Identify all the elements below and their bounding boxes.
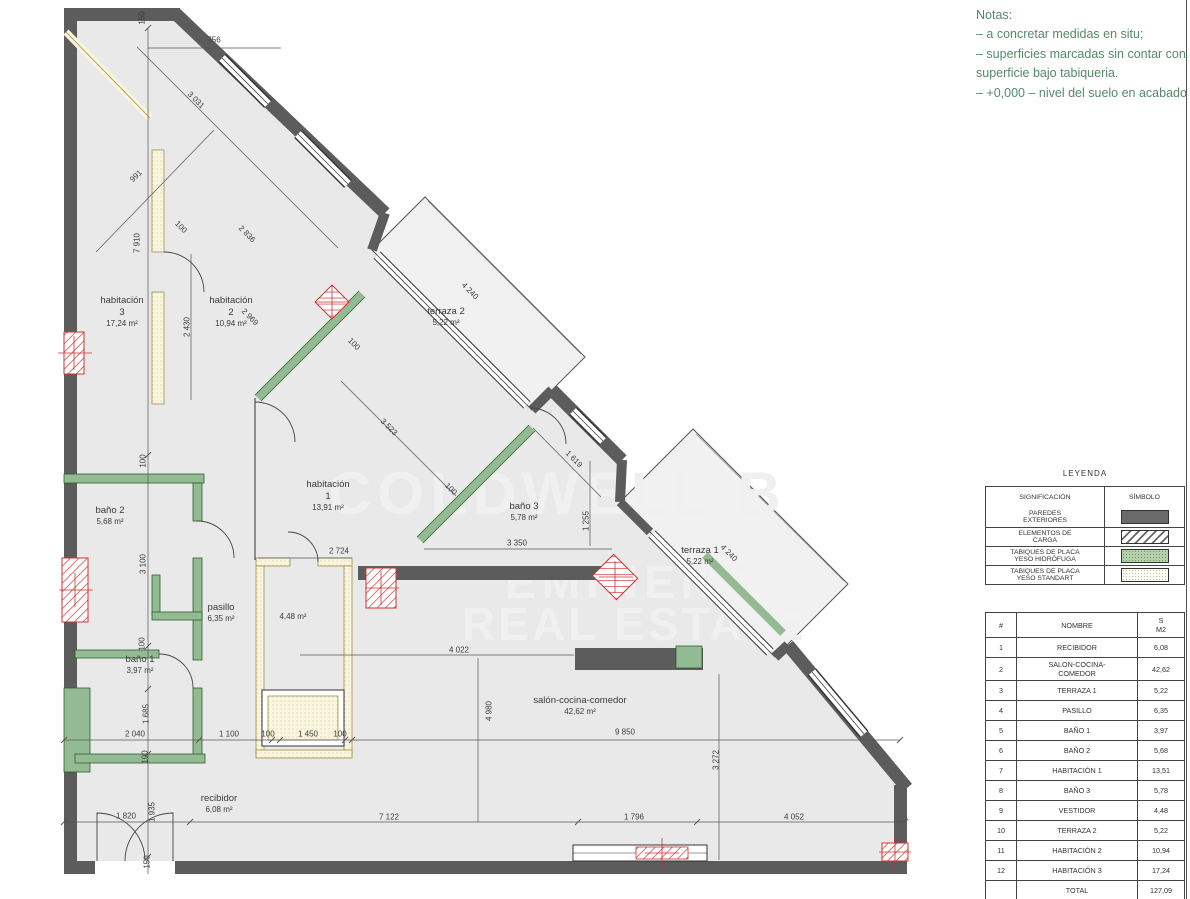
dimension-label: 1 685 xyxy=(142,704,151,724)
dimension-label: 4 052 xyxy=(784,813,804,822)
dimension-label: 3 523 xyxy=(379,417,400,438)
dimension-label: 3 350 xyxy=(507,539,527,548)
legend-row: TABIQUES DE PLACAYESO STANDART xyxy=(986,565,1184,584)
table-row: 8BAÑO 35,78 xyxy=(986,780,1184,800)
room-label: 4,48 m² xyxy=(279,612,306,622)
dimension-label: 150 xyxy=(138,11,147,24)
room-label-line: 4,48 m² xyxy=(279,612,306,622)
room-label-line: 6,08 m² xyxy=(201,805,237,815)
row-number: 11 xyxy=(986,841,1017,860)
rooms-table-header: # NOMBRE SM2 xyxy=(986,613,1184,637)
row-number: 12 xyxy=(986,861,1017,880)
room-label-line: 13,91 m² xyxy=(306,503,349,513)
row-name: HABITACIÓN 3 xyxy=(1017,861,1138,880)
note-line: – superficies marcadas sin contar con xyxy=(976,45,1190,64)
text-line: S xyxy=(1159,616,1164,625)
text-line: BAÑO 3 xyxy=(1064,786,1090,795)
row-name: TERRAZA 2 xyxy=(1017,821,1138,840)
row-area: 5,22 xyxy=(1138,681,1184,700)
text-line: CARGA xyxy=(987,537,1103,544)
text-line: TABIQUES DE PLACA xyxy=(987,549,1103,556)
room-label-line: habitación xyxy=(209,295,252,307)
room-label-line: 5,78 m² xyxy=(509,513,538,523)
room-label: habitación317,24 m² xyxy=(100,295,143,329)
dimension-label: 4 240 xyxy=(719,543,740,564)
text-line: HABITACIÓN 2 xyxy=(1052,846,1101,855)
room-label: pasillo6,35 m² xyxy=(207,602,234,624)
room-label-line: 5,22 m² xyxy=(681,557,719,567)
col-header-num: # xyxy=(986,613,1017,637)
row-number: 4 xyxy=(986,701,1017,720)
row-area: 6,35 xyxy=(1138,701,1184,720)
room-label-line: habitación xyxy=(100,295,143,307)
text-line: SALON-COCINA- xyxy=(1048,660,1105,669)
sheet-frame-line xyxy=(1186,0,1187,899)
dimension-label: 3 031 xyxy=(186,90,207,111)
rooms-table: # NOMBRE SM2 1RECIBIDOR6,082SALON-COCINA… xyxy=(985,612,1185,899)
room-label-line: 17,24 m² xyxy=(100,319,143,329)
row-number: 5 xyxy=(986,721,1017,740)
table-row: 3TERRAZA 15,22 xyxy=(986,680,1184,700)
dimension-label: 991 xyxy=(128,168,144,184)
room-label: baño 25,68 m² xyxy=(95,505,124,527)
dimension-label: 100 xyxy=(261,730,274,739)
legend-row-label: ELEMENTOS DECARGA xyxy=(986,528,1105,546)
room-label: recibidor6,08 m² xyxy=(201,793,237,815)
dimension-label: 2 430 xyxy=(183,317,192,337)
room-label-line: pasillo xyxy=(207,602,234,614)
text-line: M2 xyxy=(1156,625,1166,634)
room-label-line: baño 1 xyxy=(125,654,154,666)
room-label-line: salón-cocina-comedor xyxy=(533,695,626,707)
table-row: 10TERRAZA 25,22 xyxy=(986,820,1184,840)
room-label: salón-cocina-comedor42,62 m² xyxy=(533,695,626,717)
total-value: 127,09 xyxy=(1138,881,1184,899)
room-label: terraza 25,22 m² xyxy=(427,306,465,328)
text-line: ELEMENTOS DE xyxy=(987,530,1103,537)
dimension-label: 2 040 xyxy=(125,730,145,739)
row-area: 10,94 xyxy=(1138,841,1184,860)
row-name: HABITACIÓN 1 xyxy=(1017,761,1138,780)
dimension-label: 1 935 xyxy=(148,802,157,822)
table-row: 6BAÑO 25,68 xyxy=(986,740,1184,760)
legend-row: PAREDESEXTERIORES xyxy=(986,507,1184,527)
legend-row: ELEMENTOS DECARGA xyxy=(986,527,1184,546)
row-number: 3 xyxy=(986,681,1017,700)
room-label-line: terraza 1 xyxy=(681,545,719,557)
room-label: baño 35,78 m² xyxy=(509,501,538,523)
row-name: PASILLO xyxy=(1017,701,1138,720)
dimension-label: 7 122 xyxy=(379,813,399,822)
room-label-line: 1 xyxy=(306,491,349,503)
dimension-label: 3 100 xyxy=(139,554,148,574)
text-line: VESTIDOR xyxy=(1059,806,1096,815)
dimension-label: 100 xyxy=(346,336,362,352)
legend-title: LEYENDA xyxy=(985,469,1185,478)
text-line: EXTERIORES xyxy=(987,517,1103,524)
table-row: 11HABITACIÓN 210,94 xyxy=(986,840,1184,860)
row-number: 10 xyxy=(986,821,1017,840)
room-label-line: habitación xyxy=(306,479,349,491)
legend-header-row: SIGNIFICACIÓN SÍMBOLO xyxy=(986,487,1184,507)
legend-table: SIGNIFICACIÓN SÍMBOLO PAREDESEXTERIORESE… xyxy=(985,486,1185,585)
table-row: 1RECIBIDOR6,08 xyxy=(986,637,1184,657)
row-number: 8 xyxy=(986,781,1017,800)
dimension-label: 150 xyxy=(143,855,152,868)
room-label: habitación113,91 m² xyxy=(306,479,349,513)
room-label-line: baño 3 xyxy=(509,501,538,513)
legend-row-symbol xyxy=(1105,566,1184,584)
rooms-table-total-row: TOTAL 127,09 xyxy=(986,880,1184,899)
dimension-label: 7 910 xyxy=(133,233,142,253)
dimension-label: 1 796 xyxy=(624,813,644,822)
row-name: VESTIDOR xyxy=(1017,801,1138,820)
legend-row: TABIQUES DE PLACAYESO HIDRÓFUGA xyxy=(986,546,1184,565)
room-label-line: baño 2 xyxy=(95,505,124,517)
text-line: BAÑO 2 xyxy=(1064,746,1090,755)
dimension-label: 1 619 xyxy=(564,449,585,470)
dimension-label: 100 xyxy=(333,730,346,739)
dimension-label: 100 xyxy=(141,750,150,763)
row-number: 7 xyxy=(986,761,1017,780)
total-label: TOTAL xyxy=(1017,881,1138,899)
dimension-label: 1 100 xyxy=(219,730,239,739)
dimension-label: 1 820 xyxy=(116,812,136,821)
room-label-line: recibidor xyxy=(201,793,237,805)
table-row: 5BAÑO 13,97 xyxy=(986,720,1184,740)
table-row: 2SALON-COCINA-COMEDOR42,62 xyxy=(986,657,1184,680)
green-dotted-swatch xyxy=(1121,549,1169,563)
note-line: – +0,000 – nivel del suelo en acabado xyxy=(976,84,1190,103)
dimension-label: 100 xyxy=(443,481,459,497)
row-name: BAÑO 1 xyxy=(1017,721,1138,740)
dimension-label: 1 450 xyxy=(298,730,318,739)
text-line: HABITACIÓN 1 xyxy=(1052,766,1101,775)
text-line: YESO HIDRÓFUGA xyxy=(987,556,1103,563)
dimension-label: 1 255 xyxy=(582,511,591,531)
row-area: 42,62 xyxy=(1138,658,1184,680)
room-label-line: 3,97 m² xyxy=(125,666,154,676)
row-area: 5,68 xyxy=(1138,741,1184,760)
text-line: TERRAZA 2 xyxy=(1057,826,1096,835)
row-number: 1 xyxy=(986,638,1017,657)
legend-row-symbol xyxy=(1105,528,1184,546)
room-label-line: 5,68 m² xyxy=(95,517,124,527)
plan-labels-layer: habitación317,24 m²habitación210,94 m²te… xyxy=(0,0,970,899)
note-line: superficie bajo tabiqueria. xyxy=(976,64,1190,83)
legend-row-symbol xyxy=(1105,547,1184,565)
row-name: BAÑO 3 xyxy=(1017,781,1138,800)
col-header-area: SM2 xyxy=(1138,613,1184,637)
room-label-line: 6,35 m² xyxy=(207,614,234,624)
text-line: HABITACIÓN 3 xyxy=(1052,866,1101,875)
room-label-line: 3 xyxy=(100,307,143,319)
dimension-label: 100 xyxy=(173,219,189,235)
row-area: 3,97 xyxy=(1138,721,1184,740)
row-name: BAÑO 2 xyxy=(1017,741,1138,760)
room-label: baño 13,97 m² xyxy=(125,654,154,676)
col-header-name: NOMBRE xyxy=(1017,613,1138,637)
dimension-label: 2 836 xyxy=(237,224,258,245)
text-line: RECIBIDOR xyxy=(1057,643,1097,652)
row-area: 17,24 xyxy=(1138,861,1184,880)
note-line: – a concretar medidas en situ; xyxy=(976,25,1190,44)
row-area: 5,22 xyxy=(1138,821,1184,840)
row-area: 13,51 xyxy=(1138,761,1184,780)
notes-title: Notas: xyxy=(976,6,1190,25)
dimension-label: 100 xyxy=(138,637,147,650)
room-label-line: 42,62 m² xyxy=(533,707,626,717)
table-row: 12HABITACIÓN 317,24 xyxy=(986,860,1184,880)
legend-row-symbol xyxy=(1105,507,1184,527)
dimension-label: 4 022 xyxy=(449,646,469,655)
row-name: TERRAZA 1 xyxy=(1017,681,1138,700)
notes: Notas: – a concretar medidas en situ;– s… xyxy=(976,6,1190,103)
text-line: TERRAZA 1 xyxy=(1057,686,1096,695)
text-line: PAREDES xyxy=(987,510,1103,517)
dimension-label: 2 724 xyxy=(329,547,349,556)
diagonal-hatch-swatch xyxy=(1121,530,1169,544)
room-label: terraza 15,22 m² xyxy=(681,545,719,567)
legend-row-label: TABIQUES DE PLACAYESO HIDRÓFUGA xyxy=(986,547,1105,565)
room-label-line: 5,22 m² xyxy=(427,318,465,328)
legend-header-significacion: SIGNIFICACIÓN xyxy=(986,487,1105,507)
text-line: PASILLO xyxy=(1062,706,1091,715)
row-number: 2 xyxy=(986,658,1017,680)
row-name: SALON-COCINA-COMEDOR xyxy=(1017,658,1138,680)
solid-dark-swatch xyxy=(1121,510,1169,524)
row-area: 4,48 xyxy=(1138,801,1184,820)
dimension-label: 756 xyxy=(207,36,220,45)
text-line: COMEDOR xyxy=(1058,669,1096,678)
row-name: RECIBIDOR xyxy=(1017,638,1138,657)
floorplan-sheet: COLDWELL B EMINENT REAL ESTATE xyxy=(0,0,1190,899)
row-area: 5,78 xyxy=(1138,781,1184,800)
dimension-label: 3 272 xyxy=(712,750,721,770)
text-line: TABIQUES DE PLACA xyxy=(987,568,1103,575)
text-line: YESO STANDART xyxy=(987,575,1103,582)
row-name: HABITACIÓN 2 xyxy=(1017,841,1138,860)
table-row: 4PASILLO6,35 xyxy=(986,700,1184,720)
text-line: BAÑO 1 xyxy=(1064,726,1090,735)
room-label-line: terraza 2 xyxy=(427,306,465,318)
row-number: 9 xyxy=(986,801,1017,820)
dimension-label: 100 xyxy=(139,454,148,467)
text-line: NOMBRE xyxy=(1061,621,1093,630)
row-area: 6,08 xyxy=(1138,638,1184,657)
dimension-label: 4 240 xyxy=(460,281,481,302)
table-row: 9VESTIDOR4,48 xyxy=(986,800,1184,820)
dimension-label: 9 850 xyxy=(615,728,635,737)
plain-dotted-swatch xyxy=(1121,568,1169,582)
legend-row-label: PAREDESEXTERIORES xyxy=(986,507,1105,527)
legend-header-simbolo: SÍMBOLO xyxy=(1105,487,1184,507)
legend-row-label: TABIQUES DE PLACAYESO STANDART xyxy=(986,566,1105,584)
row-number: 6 xyxy=(986,741,1017,760)
table-row: 7HABITACIÓN 113,51 xyxy=(986,760,1184,780)
notes-lines: – a concretar medidas en situ;– superfic… xyxy=(976,25,1190,103)
dimension-label: 4 980 xyxy=(485,701,494,721)
